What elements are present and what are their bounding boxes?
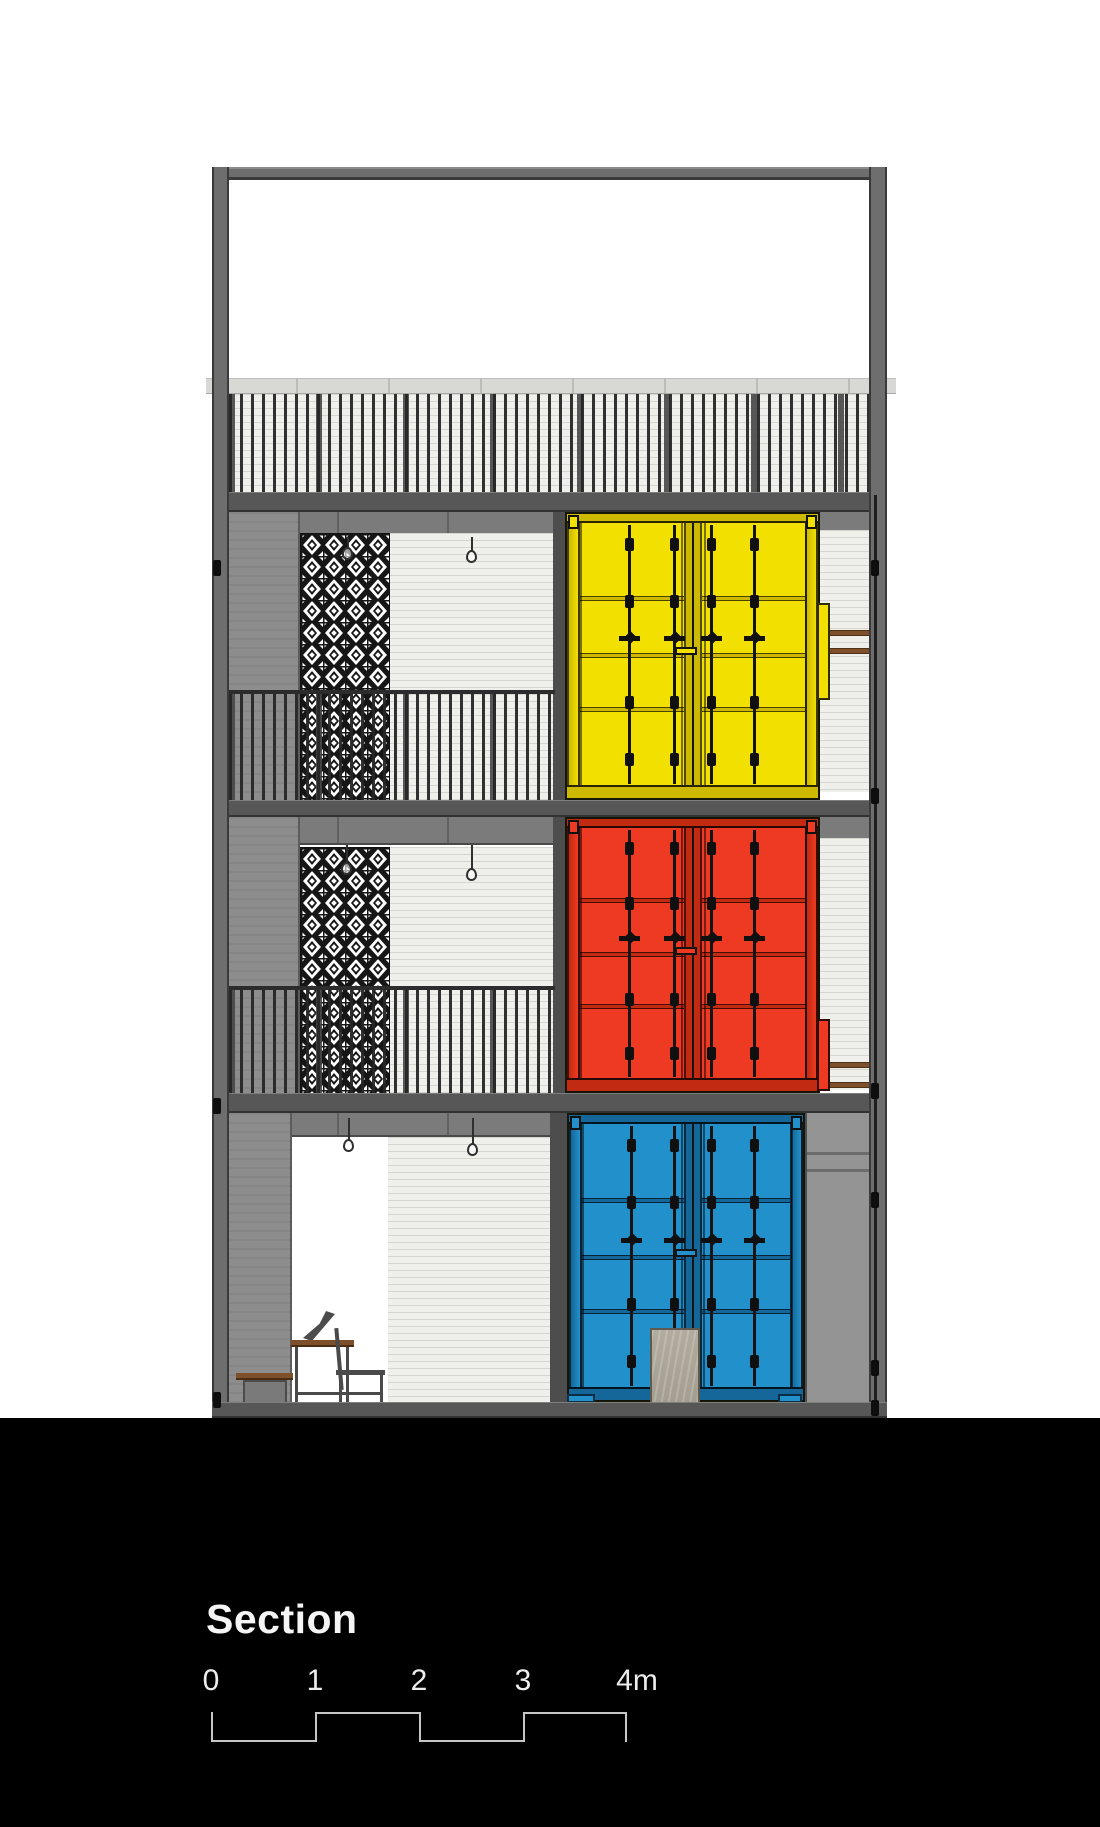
chair-leg [339, 1375, 342, 1404]
container-side-flap [817, 603, 830, 700]
architectural-section-sheet: Section 0 1 2 3 4m [0, 0, 1100, 1827]
container-lock-rod [628, 830, 631, 1077]
container-top-rail [567, 514, 818, 523]
container-lock-rod [753, 830, 756, 1077]
chair-stretcher [339, 1392, 383, 1395]
pendant-cord [472, 1118, 474, 1144]
conduit-junction-box [871, 1400, 879, 1416]
container-bottom-rail [567, 785, 818, 798]
ground-partition-column [550, 1113, 567, 1402]
container-top-rail [569, 1115, 803, 1124]
container-corner-casting [568, 820, 579, 834]
container-door-latch [675, 947, 697, 955]
pendant-cord [471, 845, 473, 869]
left-structural-post [212, 167, 229, 1418]
conduit-junction-box [213, 1098, 221, 1114]
pendant-bulb [466, 868, 477, 881]
level3-balcony-railing [229, 690, 555, 800]
ground-brick-wall [388, 1137, 550, 1402]
container-door-latch [675, 1249, 697, 1257]
level2-floor-slab [212, 1093, 887, 1113]
base-floor-slab [212, 1402, 887, 1418]
scale-tick-label: 0 [171, 1664, 251, 1698]
pendant-bulb [342, 547, 353, 560]
container-corner-casting [568, 515, 579, 529]
pendant-bulb [341, 862, 352, 875]
electrical-conduit [874, 495, 877, 1410]
ground-left-wall [229, 1113, 292, 1402]
scale-tick-label: 2 [379, 1664, 459, 1698]
pendant-cord [471, 537, 473, 551]
pendant-cord [348, 1118, 350, 1140]
chair-leg [380, 1375, 383, 1404]
pendant-bulb [466, 550, 477, 563]
container-top-rail [567, 819, 818, 828]
level3-floor-slab [212, 800, 887, 817]
conduit-junction-box [213, 1392, 221, 1408]
scale-bar-segment [315, 1712, 419, 1742]
scale-bar-segment [523, 1712, 627, 1742]
conduit-junction-box [871, 560, 879, 576]
container-corner-casting [806, 515, 817, 529]
scale-bar-segment [419, 1712, 523, 1742]
container-bottom-rail [567, 1078, 818, 1091]
container-door-left [580, 828, 683, 1078]
container-corner-post [567, 819, 580, 1091]
container-door-latch [675, 647, 697, 655]
container-door-left [580, 523, 683, 785]
scale-bar-segment [211, 1712, 315, 1742]
counter-cabinet [243, 1380, 287, 1404]
container-lock-rod [753, 525, 756, 784]
pendant-bulb [467, 1143, 478, 1156]
container-lock-rod [630, 1126, 633, 1386]
container-lock-rod [710, 830, 713, 1077]
drawing-title: Section [206, 1596, 358, 1643]
container-lock-rod [710, 525, 713, 784]
container-corner-post [569, 1115, 582, 1400]
level2-balcony-railing [229, 986, 555, 1093]
roof-floor-slab [212, 492, 887, 512]
container-corner-casting [806, 820, 817, 834]
conduit-junction-box [871, 1360, 879, 1376]
parapet-cap [206, 378, 896, 394]
scale-tick-label: 1 [275, 1664, 355, 1698]
counter-top [236, 1373, 293, 1380]
conduit-junction-box [871, 1192, 879, 1208]
container-lock-rod [710, 1126, 713, 1386]
roof-parapet-railing [229, 394, 869, 492]
container-lock-rod [628, 525, 631, 784]
container-corner-casting [570, 1116, 581, 1130]
container-side-flap [817, 1019, 830, 1091]
container-corner-casting [791, 1116, 802, 1130]
conduit-junction-box [871, 788, 879, 804]
container-door-right [703, 1124, 793, 1387]
conduit-junction-box [871, 1083, 879, 1099]
container-lock-rod [753, 1126, 756, 1386]
shipping-container-yellow [565, 512, 820, 800]
scale-tick-label: 4m [597, 1664, 677, 1698]
conduit-junction-box [213, 560, 221, 576]
chair-seat [336, 1370, 385, 1375]
container-corner-post [567, 514, 580, 798]
pendant-cord [346, 845, 348, 863]
pendant-bulb [343, 1139, 354, 1152]
table-top [291, 1340, 354, 1347]
roof-beam [212, 167, 887, 180]
shipping-container-red [565, 817, 820, 1093]
scale-tick-label: 3 [483, 1664, 563, 1698]
ground-fill [0, 1418, 1100, 1827]
